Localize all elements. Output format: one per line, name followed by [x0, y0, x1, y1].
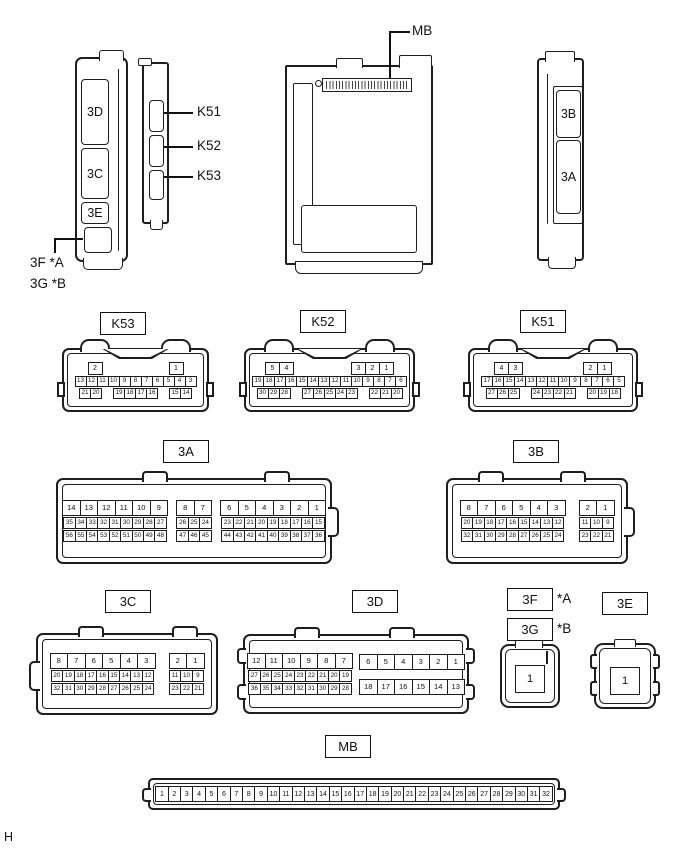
pin-7: 7 — [335, 653, 354, 669]
pin-segment: 21 — [169, 653, 205, 669]
pin-17: 17 — [354, 786, 367, 802]
pin-segment: 11109 — [579, 517, 614, 529]
connector-face-3d: 1211109872726252423222120193635343332313… — [243, 634, 469, 714]
pin-19: 19 — [378, 786, 391, 802]
pin-21: 21 — [403, 786, 416, 802]
side-wing — [206, 382, 214, 397]
pin-28: 28 — [339, 683, 351, 695]
pinout-3b: 8765432019181716151413123231302928272625… — [448, 480, 626, 562]
connector-face-3b: 8765432019181716151413123231302928272625… — [446, 478, 628, 564]
pin-group: 4321171615141312111098765272625242322212… — [481, 362, 625, 399]
pin-16: 16 — [146, 388, 158, 399]
pin-24: 24 — [440, 786, 453, 802]
k51-side-connector — [149, 100, 164, 132]
pin-row: 444342414039383736 — [221, 530, 325, 542]
pin-10: 10 — [267, 786, 280, 802]
pin-14: 14 — [429, 679, 448, 695]
pin-12: 12 — [142, 670, 154, 682]
pin-1: 1 — [308, 500, 327, 516]
pin-5: 5 — [238, 500, 257, 516]
pin-row: 14131211109 — [62, 500, 168, 516]
slot-3e: 3E — [81, 202, 109, 224]
label-k52: K52 — [300, 310, 346, 333]
pin-16: 16 — [341, 786, 354, 802]
pin-9: 9 — [192, 670, 204, 682]
pin-segment: 654321 — [359, 654, 465, 670]
pin-8: 8 — [50, 653, 69, 669]
label-3g-text: 3G — [521, 622, 538, 637]
pin-6: 6 — [85, 653, 104, 669]
pin-segment: 262524 — [176, 517, 211, 529]
screw-hole — [315, 80, 322, 87]
pin-31: 31 — [527, 786, 540, 802]
pin-17: 17 — [377, 679, 396, 695]
pin-12: 12 — [247, 653, 266, 669]
pin-row: 232221 — [169, 683, 204, 695]
pin-1: 1 — [155, 786, 168, 802]
pin-row: 1 — [515, 665, 545, 693]
pin-7: 7 — [67, 653, 86, 669]
pin-5: 5 — [265, 362, 280, 375]
slot-3d: 3D — [81, 79, 109, 145]
side-ear — [466, 648, 475, 664]
bottom-panel — [301, 205, 417, 253]
pin-16: 16 — [394, 679, 413, 695]
label-mb-text: MB — [338, 739, 358, 754]
pin-segment: 21 — [583, 362, 612, 375]
pin-14: 14 — [316, 786, 329, 802]
slot-3e-label: 3E — [87, 206, 102, 220]
pin-2: 2 — [169, 653, 188, 669]
top-tab-right — [399, 55, 432, 68]
pin-segment: 1 — [515, 665, 545, 693]
connector-face-k53: 211312111098765432120191817161514 — [62, 348, 209, 412]
page-footer: H — [4, 830, 13, 844]
pin-1: 1 — [379, 362, 394, 375]
pin-row: 565554535251504948 — [63, 530, 167, 542]
mb-connector-strip — [322, 78, 412, 92]
pinout-3a: 1413121110935343332313029282756555453525… — [58, 480, 330, 562]
pin-segment: 11109 — [169, 670, 204, 682]
pin-segment: 19181716 — [113, 388, 158, 399]
pin-row: 87 — [176, 500, 212, 516]
pin-8: 8 — [460, 500, 479, 516]
pin-row: 54321 — [252, 362, 407, 375]
pin-segment: 323130292827262524 — [461, 530, 565, 542]
pin-segment: 474645 — [176, 530, 211, 542]
callout-leader-v — [54, 238, 56, 253]
pin-row: 363534333231302928 — [248, 683, 352, 695]
pin-3: 3 — [547, 500, 566, 516]
pin-18: 18 — [609, 388, 621, 399]
pin-row: 11109 — [169, 670, 204, 682]
pin-9: 9 — [254, 786, 267, 802]
pin-20: 20 — [90, 388, 102, 399]
pin-group: 1234567891011121314151617181920212223242… — [155, 786, 553, 802]
pin-group: 8765432019181716151413123231302928272625… — [50, 653, 156, 695]
pin-segment: 1 — [610, 667, 640, 695]
pin-14: 14 — [180, 388, 192, 399]
pin-segment: 323130292827262524 — [51, 683, 155, 695]
connector-face-3c: 8765432019181716151413123231302928272625… — [36, 633, 218, 715]
pin-group: 6543212322212019181716154443424140393837… — [220, 500, 326, 542]
pin-6: 6 — [217, 786, 230, 802]
callout-leader-h — [54, 238, 83, 240]
pin-group: 2111109232221 — [169, 653, 205, 695]
pin-segment: 363534333231302928 — [248, 683, 352, 695]
pin-row: 191817161514131211109876 — [252, 376, 407, 387]
label-3g: 3G — [507, 618, 553, 641]
pin-segment: 2120 — [79, 388, 102, 399]
pin-5: 5 — [205, 786, 218, 802]
pin-29: 29 — [502, 786, 515, 802]
pin-9: 9 — [602, 517, 614, 529]
pin-5: 5 — [512, 500, 531, 516]
pin-3: 3 — [185, 376, 197, 387]
pin-1: 1 — [610, 667, 640, 695]
label-3f-text: 3F — [522, 592, 537, 607]
pin-segment: 654321 — [220, 500, 326, 516]
pin-21: 21 — [192, 683, 204, 695]
pin-1: 1 — [186, 653, 205, 669]
pin-segment: 54 — [265, 362, 294, 375]
pin-4: 4 — [255, 500, 274, 516]
pin-2: 2 — [365, 362, 380, 375]
pin-12: 12 — [552, 517, 564, 529]
pin-row: 11109 — [579, 517, 614, 529]
pin-3: 3 — [137, 653, 156, 669]
pin-24: 24 — [552, 530, 564, 542]
k53-leader — [164, 176, 193, 178]
pin-row: 21 — [169, 653, 205, 669]
label-3a: 3A — [163, 440, 209, 463]
housing-profile-line — [547, 74, 548, 224]
side-wing — [412, 382, 420, 397]
pin-segment: 222120 — [369, 388, 403, 399]
pin-group: 211312111098765432120191817161514 — [75, 362, 197, 399]
end-tab — [557, 788, 566, 802]
pin-4: 4 — [394, 654, 413, 670]
pinout-3f-3g: 1 — [502, 646, 558, 706]
pin-3: 3 — [508, 362, 523, 375]
pin-11: 11 — [279, 786, 292, 802]
pin-11: 11 — [115, 500, 134, 516]
pin-8: 8 — [317, 653, 336, 669]
pin-segment: 876543 — [460, 500, 566, 516]
label-k53-text: K53 — [111, 316, 134, 331]
pin-row: 474645 — [176, 530, 211, 542]
pinout-3c: 8765432019181716151413123231302928272625… — [38, 635, 216, 713]
slot-3d-label: 3D — [87, 105, 103, 119]
pin-row: 654321 — [220, 500, 326, 516]
pin-32: 32 — [539, 786, 552, 802]
label-k51: K51 — [520, 310, 566, 333]
housing-profile-line — [118, 69, 119, 251]
k52-leader — [164, 146, 193, 148]
pin-segment: 201918 — [587, 388, 621, 399]
pin-27: 27 — [154, 517, 166, 529]
pin-row: 232221201918171615 — [221, 517, 325, 529]
pin-36: 36 — [312, 530, 324, 542]
pinout-k52: 5432119181716151413121110987630292827262… — [246, 350, 413, 410]
ecu-right-side-view: 3B 3A — [537, 58, 584, 261]
pin-segment: 353433323130292827 — [63, 517, 167, 529]
pin-row: 21 — [75, 362, 197, 375]
label-3b-text: 3B — [528, 444, 544, 459]
pin-8: 8 — [176, 500, 195, 516]
pin-segment: 14131211109 — [62, 500, 168, 516]
pin-6: 6 — [395, 376, 407, 387]
pin-segment: 565554535251504948 — [63, 530, 167, 542]
k51-side-label: K51 — [197, 104, 221, 119]
label-3d: 3D — [352, 590, 398, 613]
label-3b: 3B — [513, 440, 559, 463]
bracket-side-view — [142, 62, 169, 224]
pin-segment: 21 — [579, 500, 615, 516]
pin-9: 9 — [150, 500, 169, 516]
pin-row: 21 — [579, 500, 615, 516]
pinout-k53: 211312111098765432120191817161514 — [64, 350, 207, 410]
mb-leader-v — [389, 31, 391, 78]
k53-side-connector — [149, 170, 164, 200]
pin-5: 5 — [613, 376, 625, 387]
pin-segment: 1 — [169, 362, 184, 375]
pin-segment: 181716151413 — [359, 679, 465, 695]
pin-20: 20 — [391, 786, 404, 802]
connector-face-3e: 1 — [594, 643, 656, 709]
pin-row: 3029282726252423222120 — [257, 388, 403, 399]
pin-segment: 201918171615141312 — [51, 670, 155, 682]
pin-13: 13 — [304, 786, 317, 802]
pin-row: 323130292827262524 — [51, 683, 155, 695]
slot-3c: 3C — [81, 148, 109, 199]
pin-9: 9 — [300, 653, 319, 669]
pin-group: 1 — [515, 665, 545, 693]
pin-25: 25 — [453, 786, 466, 802]
connector-face-k52: 5432119181716151413121110987630292827262… — [244, 348, 415, 412]
pin-segment: 321 — [351, 362, 394, 375]
mb-leader-h — [389, 31, 410, 33]
ecu-front-view — [285, 65, 433, 265]
pin-segment: 302928 — [257, 388, 291, 399]
pin-21: 21 — [602, 530, 614, 542]
pin-3: 3 — [180, 786, 193, 802]
pin-26: 26 — [465, 786, 478, 802]
pin-segment: 131211109876543 — [75, 376, 197, 387]
pin-segment: 121110987 — [247, 653, 353, 669]
label-3d-text: 3D — [367, 594, 384, 609]
pin-2: 2 — [579, 500, 598, 516]
pin-22: 22 — [415, 786, 428, 802]
pin-21: 21 — [564, 388, 576, 399]
pinout-mb: 1234567891011121314151617181920212223242… — [150, 780, 558, 808]
pin-2: 2 — [429, 654, 448, 670]
pin-2: 2 — [88, 362, 103, 375]
k52-side-connector — [149, 135, 164, 167]
pin-6: 6 — [495, 500, 514, 516]
pin-15: 15 — [312, 517, 324, 529]
pin-23: 23 — [346, 388, 358, 399]
pin-segment: 876543 — [50, 653, 156, 669]
connector-face-3a: 1413121110935343332313029282756555453525… — [56, 478, 332, 564]
pin-2: 2 — [583, 362, 598, 375]
label-k51-text: K51 — [531, 314, 554, 329]
pin-segment: 87 — [176, 500, 212, 516]
bottom-lip — [295, 261, 423, 274]
pin-row: 171615141312111098765 — [481, 376, 625, 387]
pin-4: 4 — [494, 362, 509, 375]
callout-3f: 3F *A — [30, 255, 64, 270]
pin-5: 5 — [377, 654, 396, 670]
pin-20: 20 — [391, 388, 403, 399]
slot-3a: 3A — [556, 140, 581, 214]
pin-segment: 232221201918171615 — [221, 517, 325, 529]
pin-7: 7 — [477, 500, 496, 516]
pin-segment: 24232221 — [531, 388, 576, 399]
top-tab-center — [336, 58, 363, 68]
pin-6: 6 — [359, 654, 378, 670]
bracket-foot — [150, 220, 163, 230]
label-3e: 3E — [602, 592, 648, 615]
pin-4: 4 — [530, 500, 549, 516]
mb-callout-label: MB — [412, 23, 432, 38]
pin-segment: 191817161514131211109876 — [252, 376, 407, 387]
pin-row: 4321 — [481, 362, 625, 375]
pin-row: 876543 — [460, 500, 566, 516]
bottom-foot — [548, 257, 576, 269]
pin-1: 1 — [169, 362, 184, 375]
pin-11: 11 — [265, 653, 284, 669]
pin-24: 24 — [142, 683, 154, 695]
pin-segment: 2726252423 — [302, 388, 358, 399]
pin-48: 48 — [154, 530, 166, 542]
pin-row: 876543 — [50, 653, 156, 669]
pin-group: 1413121110935343332313029282756555453525… — [62, 500, 168, 542]
pinout-3d: 1211109872726252423222120193635343332313… — [245, 636, 467, 712]
pin-segment: 1234567891011121314151617181920212223242… — [155, 786, 553, 802]
side-ear — [653, 681, 660, 696]
pin-7: 7 — [230, 786, 243, 802]
pin-segment: 272625242322212019 — [248, 670, 352, 682]
label-3c-text: 3C — [120, 594, 137, 609]
side-wing — [635, 382, 643, 397]
slot-3b-label: 3B — [561, 107, 576, 121]
pin-row: 181716151413 — [359, 679, 465, 695]
pin-group: 5432119181716151413121110987630292827262… — [252, 362, 407, 399]
pin-row: 262524 — [176, 517, 211, 529]
pin-row: 2120191817161514 — [79, 388, 192, 399]
pin-3: 3 — [273, 500, 292, 516]
pin-5: 5 — [102, 653, 121, 669]
slot-3fg-unlabeled — [84, 227, 112, 253]
pin-3: 3 — [351, 362, 366, 375]
pin-19: 19 — [339, 670, 351, 682]
pin-18: 18 — [366, 786, 379, 802]
bracket-top-flag — [138, 58, 152, 66]
pin-segment: 43 — [494, 362, 523, 375]
label-3a-text: 3A — [178, 444, 194, 459]
pin-row: 323130292827262524 — [461, 530, 565, 542]
pin-8: 8 — [242, 786, 255, 802]
suffix-3g: *B — [557, 621, 571, 636]
pin-13: 13 — [447, 679, 466, 695]
pin-13: 13 — [80, 500, 99, 516]
pin-45: 45 — [199, 530, 211, 542]
pinout-3e: 1 — [596, 645, 654, 707]
pin-12: 12 — [97, 500, 116, 516]
pin-1: 1 — [447, 654, 466, 670]
pin-6: 6 — [220, 500, 239, 516]
side-ear — [466, 684, 475, 700]
pin-3: 3 — [412, 654, 431, 670]
pin-4: 4 — [120, 653, 139, 669]
slot-3b: 3B — [556, 90, 581, 138]
slot-3c-label: 3C — [87, 167, 103, 181]
pin-row: 27262524232221201918 — [486, 388, 621, 399]
connector-pinout-diagram: 3D 3C 3E 3F *A 3G *B K51 K52 K53 MB 3B — [0, 0, 688, 852]
top-tab — [545, 51, 575, 62]
label-mb: MB — [325, 735, 371, 758]
pin-row: 353433323130292827 — [63, 517, 167, 529]
pin-group: 1211109872726252423222120193635343332313… — [247, 653, 353, 695]
bottom-foot — [83, 258, 123, 270]
pin-row: 1234567891011121314151617181920212223242… — [155, 786, 553, 802]
callout-3g: 3G *B — [30, 276, 66, 291]
k52-side-label: K52 — [197, 138, 221, 153]
pin-group: 87262524474645 — [176, 500, 212, 542]
label-3e-text: 3E — [617, 596, 633, 611]
pin-18: 18 — [359, 679, 378, 695]
k53-side-label: K53 — [197, 168, 221, 183]
pin-row: 201918171615141312 — [51, 670, 155, 682]
pin-2: 2 — [290, 500, 309, 516]
pin-row: 232221 — [579, 530, 614, 542]
pin-27: 27 — [477, 786, 490, 802]
pin-14: 14 — [62, 500, 81, 516]
pin-25: 25 — [508, 388, 520, 399]
pin-group: 654321181716151413 — [359, 654, 465, 695]
pin-28: 28 — [279, 388, 291, 399]
pin-segment: 232221 — [579, 530, 614, 542]
connector-face-3f-3g: 1 — [500, 644, 560, 708]
pin-row: 121110987 — [247, 653, 353, 669]
pin-30: 30 — [515, 786, 528, 802]
pin-segment: 201918171615141312 — [461, 517, 565, 529]
connector-face-mb: 1234567891011121314151617181920212223242… — [148, 778, 560, 810]
pin-4: 4 — [279, 362, 294, 375]
pin-segment: 444342414039383736 — [221, 530, 325, 542]
label-k52-text: K52 — [311, 314, 334, 329]
k51-leader — [164, 112, 193, 114]
pin-10: 10 — [132, 500, 151, 516]
pin-group: 1 — [610, 667, 640, 695]
pin-1: 1 — [597, 362, 612, 375]
pin-row: 131211109876543 — [75, 376, 197, 387]
connector-face-k51: 4321171615141312111098765272625242322212… — [468, 348, 638, 412]
pin-row: 1 — [610, 667, 640, 695]
pin-row: 272625242322212019 — [248, 670, 352, 682]
pin-23: 23 — [428, 786, 441, 802]
pin-group: 2111109232221 — [579, 500, 615, 542]
pin-7: 7 — [194, 500, 213, 516]
pin-28: 28 — [490, 786, 503, 802]
pin-15: 15 — [412, 679, 431, 695]
pinout-k51: 4321171615141312111098765272625242322212… — [470, 350, 636, 410]
pin-row: 654321 — [359, 654, 465, 670]
pin-10: 10 — [282, 653, 301, 669]
pin-segment: 1514 — [169, 388, 192, 399]
suffix-3f: *A — [557, 591, 571, 606]
